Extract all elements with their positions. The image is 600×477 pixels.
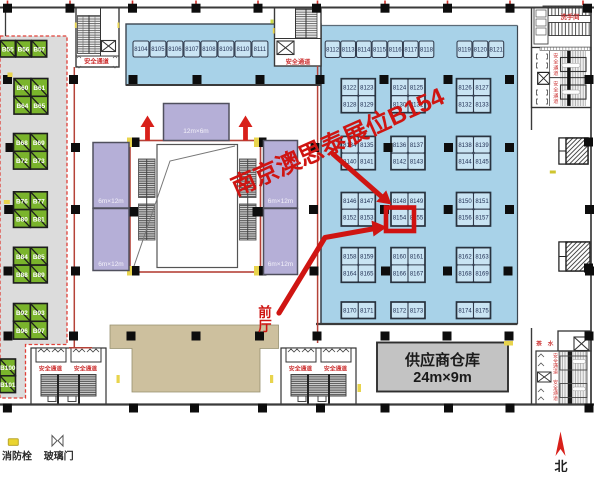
svg-text:通: 通 <box>553 91 559 99</box>
svg-text:B80: B80 <box>16 216 28 223</box>
svg-text:安全通道: 安全通道 <box>84 58 110 66</box>
svg-text:8173: 8173 <box>410 308 424 314</box>
svg-text:8111: 8111 <box>254 47 267 53</box>
svg-text:8166: 8166 <box>393 272 407 278</box>
svg-text:8104: 8104 <box>134 47 148 53</box>
svg-text:B73: B73 <box>33 158 45 165</box>
svg-text:6m×12m: 6m×12m <box>98 198 123 205</box>
svg-text:B61: B61 <box>33 85 45 92</box>
svg-text:水: 水 <box>548 340 554 348</box>
svg-text:供应商仓库: 供应商仓库 <box>404 351 480 369</box>
svg-text:12m×6m: 12m×6m <box>183 128 208 135</box>
svg-text:8150: 8150 <box>458 199 472 205</box>
svg-text:8151: 8151 <box>475 199 489 205</box>
svg-text:B65: B65 <box>33 103 45 110</box>
svg-text:8147: 8147 <box>360 199 374 205</box>
svg-text:8124: 8124 <box>393 85 407 91</box>
svg-text:通: 通 <box>553 63 559 71</box>
svg-text:B55: B55 <box>2 47 14 54</box>
svg-text:8106: 8106 <box>168 47 182 53</box>
svg-text:8139: 8139 <box>475 143 489 149</box>
svg-text:洗手间: 洗手间 <box>561 12 580 21</box>
svg-text:道: 道 <box>553 368 558 375</box>
svg-text:8123: 8123 <box>360 85 374 91</box>
svg-text:B92: B92 <box>16 310 28 317</box>
svg-text:8120: 8120 <box>474 47 488 53</box>
svg-text:B56: B56 <box>18 47 30 54</box>
svg-text:前: 前 <box>258 304 272 320</box>
svg-text:8113: 8113 <box>342 47 356 53</box>
svg-text:8109: 8109 <box>219 47 233 53</box>
svg-text:8160: 8160 <box>393 254 407 260</box>
svg-text:全: 全 <box>553 85 559 93</box>
svg-text:安全通道: 安全通道 <box>74 365 97 373</box>
svg-text:8121: 8121 <box>490 47 504 53</box>
svg-text:道: 道 <box>553 69 558 77</box>
svg-text:8138: 8138 <box>458 143 472 149</box>
svg-text:8144: 8144 <box>458 160 472 166</box>
svg-text:B101: B101 <box>0 382 16 389</box>
svg-text:8152: 8152 <box>343 216 357 222</box>
svg-text:道: 道 <box>553 97 558 105</box>
svg-text:8145: 8145 <box>475 160 489 166</box>
svg-text:消防栓: 消防栓 <box>2 450 32 463</box>
svg-text:8146: 8146 <box>343 199 357 205</box>
svg-text:8148: 8148 <box>393 199 407 205</box>
svg-text:8133: 8133 <box>475 102 489 108</box>
svg-text:8119: 8119 <box>458 47 472 53</box>
svg-text:24m×9m: 24m×9m <box>413 370 471 386</box>
svg-text:全: 全 <box>553 57 559 65</box>
svg-text:B69: B69 <box>33 140 45 147</box>
svg-text:8126: 8126 <box>458 85 472 91</box>
svg-text:8169: 8169 <box>475 272 489 278</box>
svg-text:8129: 8129 <box>360 102 374 108</box>
svg-text:B81: B81 <box>33 216 45 223</box>
svg-text:安: 安 <box>553 80 558 88</box>
svg-text:8142: 8142 <box>393 160 407 166</box>
svg-text:8137: 8137 <box>410 143 424 149</box>
svg-text:8115: 8115 <box>373 47 387 53</box>
svg-text:8171: 8171 <box>360 308 374 314</box>
svg-text:8105: 8105 <box>151 47 165 53</box>
svg-text:玻璃门: 玻璃门 <box>44 450 74 463</box>
svg-text:8107: 8107 <box>185 47 199 53</box>
svg-text:8174: 8174 <box>458 308 472 314</box>
svg-text:道: 道 <box>553 395 558 402</box>
svg-text:8154: 8154 <box>393 216 407 222</box>
svg-text:8112: 8112 <box>326 47 340 53</box>
svg-text:8157: 8157 <box>475 216 489 222</box>
svg-text:安: 安 <box>553 52 558 60</box>
svg-text:8163: 8163 <box>475 254 489 260</box>
svg-text:8122: 8122 <box>343 85 357 91</box>
svg-text:8132: 8132 <box>458 102 472 108</box>
svg-text:B100: B100 <box>0 365 16 372</box>
svg-text:安全通道: 安全通道 <box>289 365 312 373</box>
svg-text:8110: 8110 <box>236 47 250 53</box>
svg-text:8172: 8172 <box>393 308 407 314</box>
svg-text:B96: B96 <box>16 328 28 335</box>
svg-text:B84: B84 <box>16 254 28 261</box>
svg-text:B77: B77 <box>33 199 45 206</box>
svg-text:8159: 8159 <box>360 254 374 260</box>
svg-text:8175: 8175 <box>475 308 489 314</box>
svg-text:8161: 8161 <box>410 254 424 260</box>
svg-text:北: 北 <box>554 459 567 472</box>
svg-text:8170: 8170 <box>343 308 357 314</box>
svg-text:8164: 8164 <box>343 272 357 278</box>
svg-text:厅: 厅 <box>258 319 272 334</box>
svg-text:8141: 8141 <box>360 160 374 166</box>
svg-text:B97: B97 <box>33 328 45 335</box>
svg-text:6m×12m: 6m×12m <box>268 261 293 268</box>
svg-text:8128: 8128 <box>343 102 357 108</box>
svg-text:8118: 8118 <box>420 47 434 53</box>
svg-text:B93: B93 <box>33 310 45 317</box>
svg-text:8165: 8165 <box>360 272 374 278</box>
svg-text:B89: B89 <box>33 272 45 279</box>
svg-text:8143: 8143 <box>410 160 424 166</box>
svg-text:B76: B76 <box>16 199 28 206</box>
svg-text:安全通道: 安全通道 <box>286 58 312 66</box>
svg-text:6m×12m: 6m×12m <box>268 198 293 205</box>
svg-text:B85: B85 <box>33 254 45 261</box>
svg-text:茶: 茶 <box>535 340 542 348</box>
svg-text:8127: 8127 <box>475 85 489 91</box>
svg-text:8156: 8156 <box>458 216 472 222</box>
svg-text:8116: 8116 <box>389 47 403 53</box>
svg-text:8167: 8167 <box>410 272 424 278</box>
svg-text:B88: B88 <box>16 272 28 279</box>
svg-text:安全通道: 安全通道 <box>324 365 347 373</box>
svg-text:8108: 8108 <box>202 47 216 53</box>
svg-text:8158: 8158 <box>343 254 357 260</box>
svg-text:8117: 8117 <box>404 47 418 53</box>
svg-text:B57: B57 <box>33 47 45 54</box>
svg-text:8136: 8136 <box>393 143 407 149</box>
svg-text:6m×12m: 6m×12m <box>98 261 123 268</box>
svg-text:8168: 8168 <box>458 272 472 278</box>
svg-text:8149: 8149 <box>410 199 424 205</box>
svg-text:B72: B72 <box>16 158 28 165</box>
svg-text:B60: B60 <box>17 85 29 92</box>
svg-text:B64: B64 <box>17 103 29 110</box>
svg-text:8162: 8162 <box>458 254 472 260</box>
svg-text:安全通道: 安全通道 <box>39 365 62 373</box>
svg-text:B68: B68 <box>16 140 28 147</box>
svg-text:8114: 8114 <box>357 47 371 53</box>
